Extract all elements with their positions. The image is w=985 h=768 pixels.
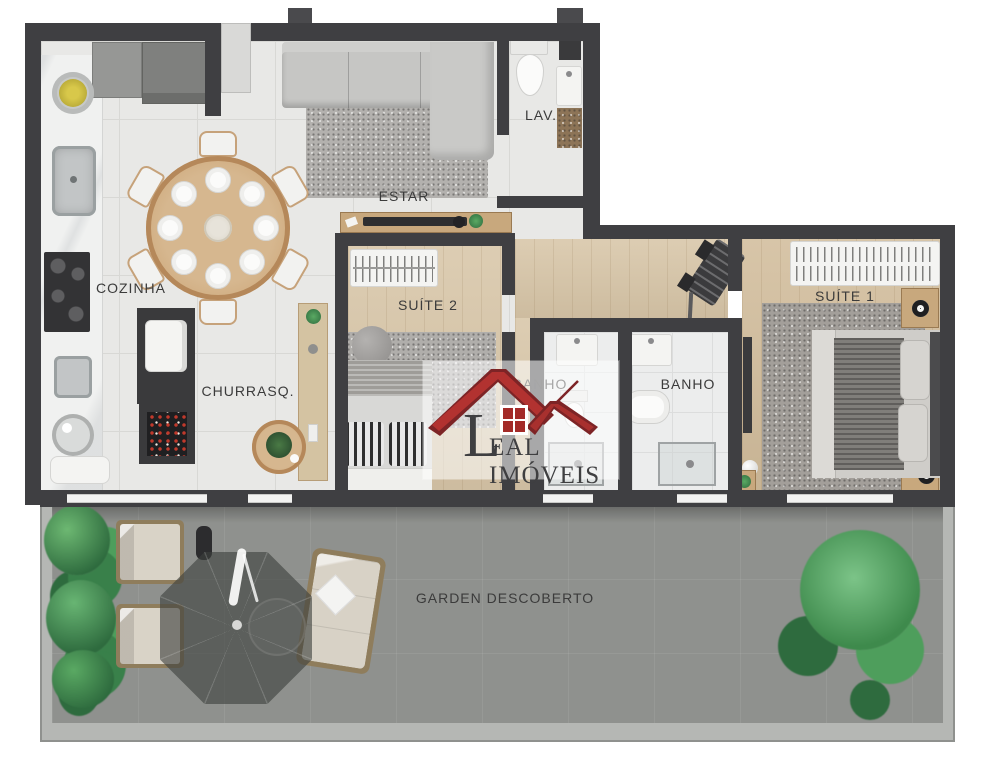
suite1-left-wall: [728, 318, 742, 490]
glass-door: [543, 494, 593, 503]
dining-set: [146, 156, 290, 300]
suite2-left-wall: [335, 233, 348, 490]
suite1-closet: [790, 241, 940, 286]
dining-chair: [199, 131, 237, 157]
bar-fridge: [145, 320, 187, 372]
room-label-suite1: SUÍTE 1: [815, 288, 875, 304]
tv-console: [340, 212, 512, 233]
plant-pot: [306, 309, 321, 324]
right-wall: [940, 225, 955, 507]
upper-cabinet: [92, 42, 142, 98]
room-label-churrasq: CHURRASQ.: [201, 383, 294, 399]
room-label-lav: LAV.: [525, 107, 557, 123]
tv: [363, 217, 467, 226]
prep-sink: [54, 356, 92, 398]
cooktop: [44, 252, 90, 332]
room-label-banho-suite1: BANHO: [661, 376, 716, 392]
wall-stub: [288, 8, 312, 24]
floor-plan: COZINHA ESTAR LAV. CHURRASQ. SUÍTE 2 BAN…: [0, 0, 985, 768]
plant: [52, 650, 114, 708]
plant: [46, 580, 116, 656]
plate: [171, 249, 197, 275]
plate: [157, 215, 183, 241]
lav-washbasin: [556, 66, 582, 106]
watermark-logo: L EAL IMÓVEIS: [423, 361, 619, 479]
table-plant: [266, 432, 292, 458]
pillow: [900, 340, 930, 400]
plant: [800, 530, 920, 650]
room-label-cozinha: COZINHA: [96, 280, 166, 296]
window-column: [221, 23, 251, 93]
banho-divider-wall: [618, 332, 632, 490]
sofa-chaise: [430, 42, 494, 160]
striped-pillow: [389, 422, 427, 466]
suite2-right-wall: [502, 233, 515, 295]
glass-door: [248, 494, 292, 503]
banho-suite1-vanity: [630, 334, 672, 366]
bistro-table: [252, 420, 306, 474]
centerpiece: [204, 214, 232, 242]
duvet-fold: [812, 330, 836, 478]
plate: [239, 249, 265, 275]
knit-throw: [342, 360, 432, 396]
refrigerator: [142, 42, 208, 104]
plate: [253, 215, 279, 241]
double-roof-house-icon: [426, 365, 616, 440]
dining-chair: [199, 299, 237, 325]
building-shadow: [52, 505, 943, 523]
upper-right-wall: [583, 225, 955, 239]
toilet: [510, 39, 548, 55]
shower: [658, 442, 716, 486]
decor-sphere: [453, 216, 465, 228]
plant-pot: [469, 214, 483, 228]
top-wall: [25, 23, 600, 41]
plate: [205, 167, 231, 193]
headboard: [930, 332, 940, 476]
lav-rug: [557, 108, 582, 148]
suite1-left-wall: [728, 239, 742, 291]
glass-door: [677, 494, 727, 503]
remote: [345, 216, 358, 227]
headboard: [342, 468, 432, 490]
pillow: [898, 404, 928, 462]
plate: [171, 181, 197, 207]
suite2-top-wall: [335, 233, 515, 246]
sun-lounger: [116, 520, 184, 584]
wall-stub: [557, 8, 583, 24]
fruit-bowl: [52, 72, 94, 114]
glass-door: [787, 494, 893, 503]
glass-door: [67, 494, 207, 503]
nightstand: [901, 288, 939, 328]
suite2-closet: [350, 249, 438, 287]
dark-blanket: [834, 338, 904, 470]
barbecue-grill: [139, 404, 195, 464]
left-wall: [25, 23, 41, 505]
striped-pillow: [346, 422, 384, 466]
suite1-tv-panel: [743, 337, 752, 433]
lav-bottom-wall: [497, 196, 600, 208]
suite2-bed: [342, 360, 432, 490]
lav-left-wall: [497, 23, 509, 135]
suite1-bed: [812, 330, 940, 478]
kitchen-partition: [205, 32, 221, 116]
plant: [44, 505, 110, 575]
serving-bowl: [52, 414, 94, 456]
room-label-garden: GARDEN DESCOBERTO: [416, 590, 594, 606]
banho-top-wall: [530, 318, 742, 332]
room-label-suite2: SUÍTE 2: [398, 297, 458, 313]
plate: [239, 181, 265, 207]
table-lamp: [912, 300, 929, 317]
brand-name: EAL IMÓVEIS: [489, 434, 619, 490]
kitchen-sink: [52, 146, 96, 216]
room-label-estar: ESTAR: [379, 188, 430, 204]
kitchen-bench: [50, 456, 110, 484]
plate: [205, 263, 231, 289]
